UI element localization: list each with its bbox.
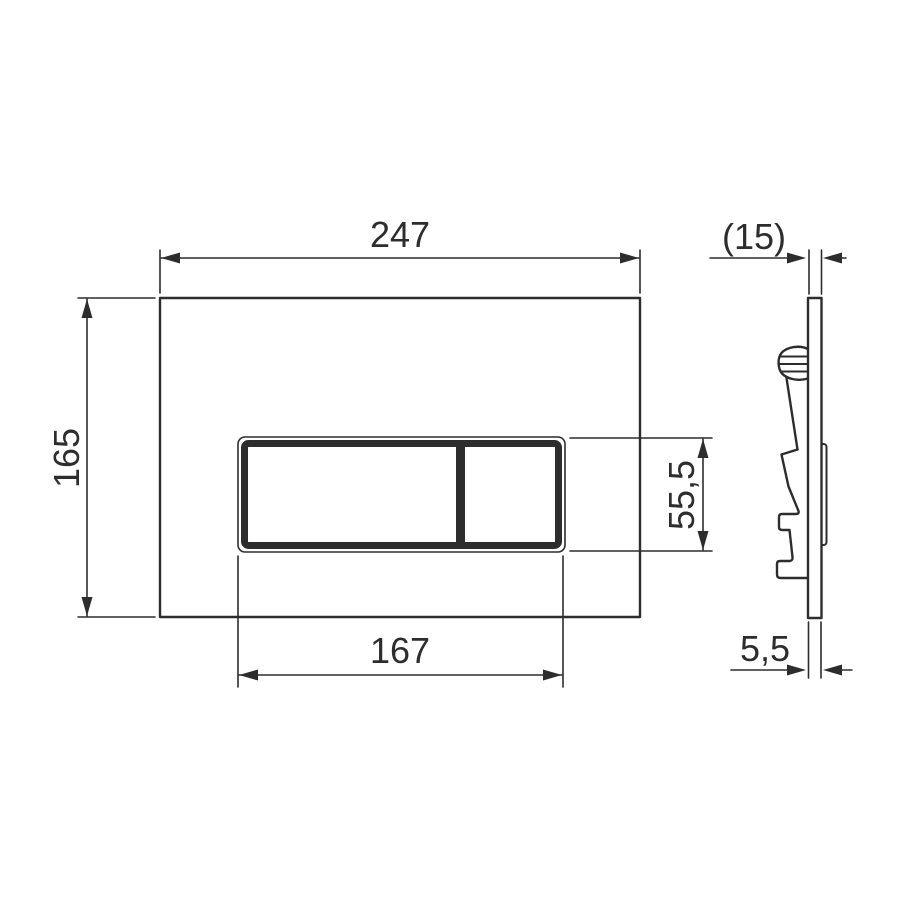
dim-label-plate-thickness: 5,5	[740, 628, 790, 669]
extension-lines	[809, 622, 822, 678]
drawing-canvas: 247 165 55,5 167	[0, 0, 900, 900]
dimension-plate-width: 247	[160, 214, 640, 293]
mounting-clip	[777, 347, 808, 578]
arrowhead-right-icon	[823, 665, 842, 676]
plate-profile-bar	[808, 298, 822, 618]
dim-label-plate-height: 165	[46, 428, 87, 488]
extension-lines	[809, 250, 822, 294]
arrowhead-right-icon	[543, 670, 562, 681]
arrowhead-right-icon	[620, 253, 639, 264]
arrowhead-left-icon	[239, 670, 258, 681]
dimension-overall-depth: (15)	[710, 216, 846, 294]
dim-label-overall-depth: (15)	[722, 216, 786, 257]
clip-hook-and-foot	[777, 450, 808, 579]
dimension-plate-thickness: 5,5	[731, 622, 852, 678]
small-flush-button	[466, 448, 555, 541]
technical-drawing: 247 165 55,5 167	[0, 0, 900, 900]
arrowhead-right-icon	[823, 253, 842, 264]
arrowhead-left-icon	[787, 253, 806, 264]
side-view	[777, 298, 827, 618]
dimension-plate-height: 165	[46, 298, 155, 617]
dim-label-button-area-width: 167	[370, 630, 430, 671]
large-flush-button	[249, 448, 453, 541]
arrowhead-bottom-icon	[698, 531, 709, 550]
front-view	[160, 298, 640, 617]
dim-label-button-area-height: 55,5	[661, 460, 702, 530]
arrowhead-left-icon	[161, 253, 180, 264]
arrowhead-top-icon	[82, 299, 93, 318]
dim-label-plate-width: 247	[370, 214, 430, 255]
extension-lines	[160, 250, 640, 293]
arrowhead-bottom-icon	[82, 597, 93, 616]
extension-lines	[78, 298, 155, 617]
clip-strut	[787, 378, 798, 450]
arrowhead-top-icon	[698, 439, 709, 458]
button-divider	[456, 444, 465, 545]
